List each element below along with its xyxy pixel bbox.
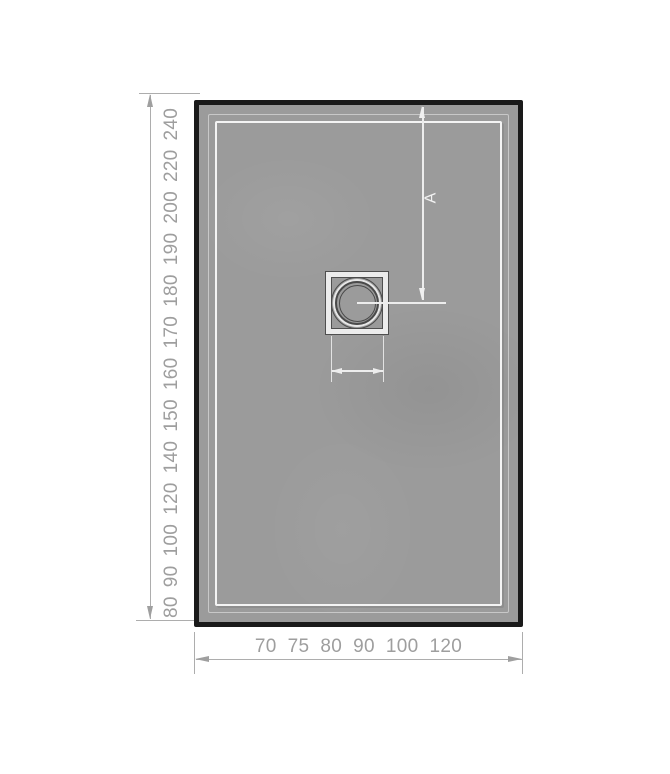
drain-offset-dimension-line — [422, 107, 424, 300]
height-dimension-line — [150, 95, 151, 619]
width-scale-value: 120 — [429, 636, 462, 657]
height-scale-value: 140 — [161, 441, 182, 474]
height-scale-value: 190 — [161, 233, 182, 266]
arrow-down-icon — [419, 288, 425, 300]
width-scale-labels: 70758090100120 — [194, 636, 523, 657]
height-scale-value: 160 — [161, 357, 182, 390]
drain-width-extension-right — [383, 336, 384, 382]
shower-tray: A — [194, 100, 523, 627]
height-scale-value: 180 — [161, 274, 182, 307]
tray-rim-line-outer — [208, 114, 509, 613]
width-scale-value: 80 — [320, 636, 342, 657]
height-extension-line-bottom — [136, 620, 194, 621]
height-scale-value: 100 — [161, 524, 182, 557]
arrow-up-icon — [147, 94, 153, 107]
height-scale-value: 90 — [161, 566, 182, 588]
height-scale-value: 200 — [161, 191, 182, 224]
height-scale-value: 120 — [161, 482, 182, 515]
arrow-right-icon — [373, 368, 384, 374]
height-scale-value: 220 — [161, 149, 182, 182]
width-scale-value: 100 — [386, 636, 419, 657]
height-scale-value: 80 — [161, 596, 182, 618]
drain-width-extension-left — [331, 336, 332, 382]
dimension-a-label: A — [423, 193, 439, 204]
width-dimension-line — [196, 659, 522, 660]
drawing-canvas: 8090100120140150160170180190200220240 A … — [0, 0, 670, 774]
width-scale-value: 75 — [288, 636, 310, 657]
width-scale-value: 90 — [353, 636, 375, 657]
drain-center-line — [357, 302, 446, 304]
arrow-down-icon — [147, 606, 153, 619]
height-scale-value: 150 — [161, 399, 182, 432]
arrow-left-icon — [331, 368, 342, 374]
width-scale-value: 70 — [255, 636, 277, 657]
height-scale-value: 240 — [161, 108, 182, 141]
arrow-up-icon — [419, 106, 425, 118]
height-scale-value: 170 — [161, 316, 182, 349]
tray-rim-line-inner — [215, 121, 502, 606]
height-scale-labels: 8090100120140150160170180190200220240 — [161, 108, 182, 618]
